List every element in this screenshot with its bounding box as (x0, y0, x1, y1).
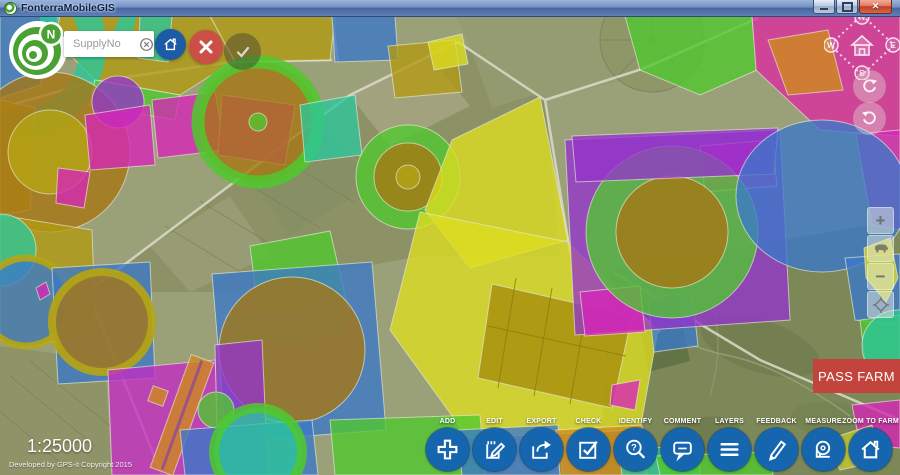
house-icon (858, 437, 883, 462)
toolbar-feedback-button[interactable]: FEEDBACK (753, 418, 800, 471)
zoom-out-button[interactable]: − (867, 263, 894, 290)
pencil-icon (764, 437, 789, 462)
credit-label: Developed by GPS-it Copyright 2015 (9, 460, 132, 469)
search-input[interactable] (71, 37, 139, 51)
window-controls: ✕ (813, 0, 892, 14)
minimize-button[interactable] (813, 0, 835, 14)
window-title: FonterraMobileGIS (21, 2, 115, 14)
search-box (64, 31, 154, 57)
toolbar-edit-button[interactable]: EDIT (471, 418, 518, 471)
toolbar-check-button[interactable]: CHECK (565, 418, 612, 471)
home-search-button[interactable] (155, 29, 186, 60)
toolbar-export-button[interactable]: EXPORT (518, 418, 565, 471)
compass-rose[interactable]: N E S W (824, 10, 900, 80)
toolbar-measure-label: MEASURE (805, 418, 841, 425)
maximize-icon (842, 2, 853, 12)
gps-diamond-icon (871, 295, 891, 315)
bottom-toolbar: ADD EDIT EXPORT CHECK (424, 418, 894, 471)
zoom-animal-button[interactable] (867, 235, 894, 262)
toolbar-add-label: ADD (440, 418, 456, 425)
app-icon (4, 2, 17, 15)
toolbar-measure-button[interactable]: MEASURE (800, 418, 847, 471)
toolbar-zoom-to-farm-button[interactable]: ZOOM TO FARM (847, 418, 894, 471)
house-icon (852, 36, 872, 55)
logo-letter: N (47, 28, 56, 42)
close-icon: ✕ (872, 2, 880, 11)
maximize-button[interactable] (836, 0, 858, 14)
toolbar-zoom-to-farm-label: ZOOM TO FARM (842, 418, 899, 425)
map-canvas[interactable] (0, 16, 900, 475)
x-icon (199, 40, 213, 54)
toolbar-export-label: EXPORT (527, 418, 557, 425)
layers-lines-icon (717, 437, 742, 462)
rotate-clockwise-button[interactable] (853, 70, 886, 103)
toolbar-comment-button[interactable]: COMMENT (659, 418, 706, 471)
minimize-icon (820, 8, 828, 10)
zoom-in-button[interactable]: + (867, 207, 894, 234)
toolbar-identify-label: IDENTIFY (619, 418, 653, 425)
plus-icon (435, 437, 460, 462)
toolbar-layers-label: LAYERS (715, 418, 744, 425)
measuring-tape-icon (811, 437, 836, 462)
house-icon (162, 36, 179, 53)
pass-farm-button[interactable]: PASS FARM (813, 359, 900, 393)
app-window: FonterraMobileGIS ✕ N (0, 0, 900, 475)
speech-bubble-icon (670, 437, 695, 462)
app-logo: N (8, 18, 70, 80)
zoom-in-label: + (876, 211, 886, 231)
rotate-counterclockwise-button[interactable] (853, 102, 886, 135)
compass-west-label: W (827, 40, 836, 50)
close-button[interactable]: ✕ (859, 0, 892, 14)
toolbar-layers-button[interactable]: LAYERS (706, 418, 753, 471)
edit-note-icon (482, 437, 507, 462)
compass-east-label: E (890, 40, 896, 50)
toolbar-edit-label: EDIT (486, 418, 503, 425)
toolbar-add-button[interactable]: ADD (424, 418, 471, 471)
export-arrow-icon (529, 437, 554, 462)
toolbar-check-label: CHECK (576, 418, 602, 425)
toolbar-comment-label: COMMENT (664, 418, 702, 425)
svg-text:?: ? (631, 443, 637, 453)
gps-extent-button[interactable] (867, 291, 894, 318)
toolbar-identify-button[interactable]: IDENTIFY ? (612, 418, 659, 471)
clear-search-icon[interactable] (139, 37, 154, 52)
cancel-button[interactable] (189, 30, 223, 64)
magnifier-question-icon: ? (623, 437, 648, 462)
map-scale-label: 1:25000 (27, 436, 92, 457)
toolbar-feedback-label: FEEDBACK (756, 418, 797, 425)
checkbox-icon (576, 437, 601, 462)
rotate-counterclockwise-icon (860, 109, 879, 128)
check-icon (235, 44, 251, 60)
confirm-button[interactable] (224, 33, 261, 70)
title-bar: FonterraMobileGIS (0, 0, 900, 17)
zoom-out-label: − (876, 267, 886, 287)
cow-icon (871, 239, 890, 258)
rotate-clockwise-icon (860, 77, 879, 96)
map-zoom-controls: + − (867, 207, 894, 318)
